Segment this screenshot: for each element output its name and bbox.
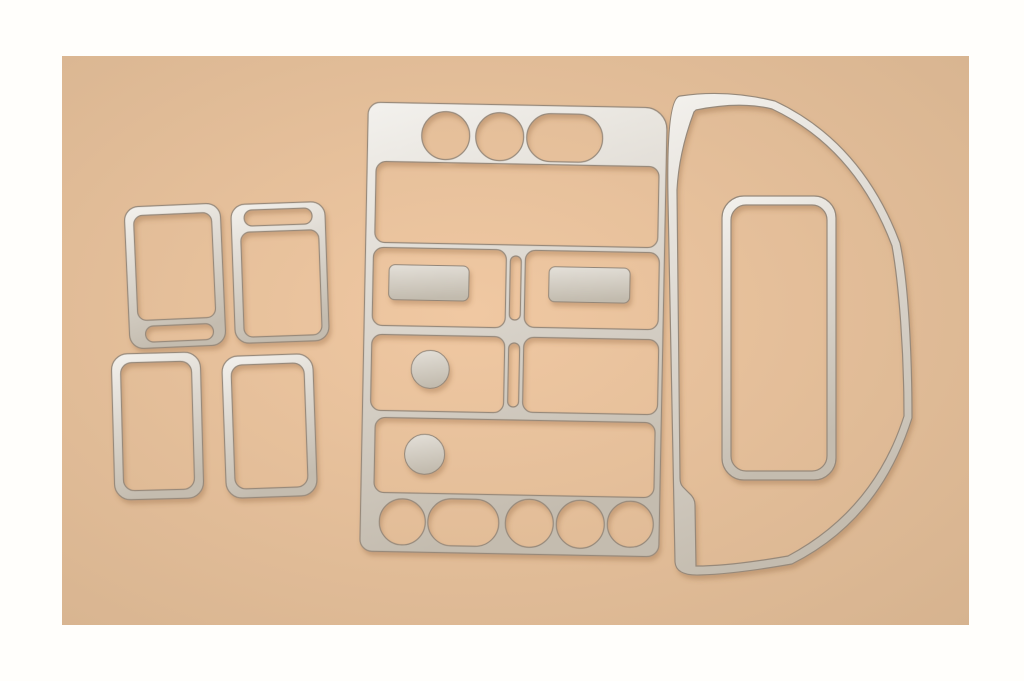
knob-cover-upper xyxy=(411,350,450,389)
knob-cover-lower xyxy=(404,434,445,475)
insert-button-right xyxy=(549,267,631,304)
insert-button-left xyxy=(389,265,470,302)
product-photo-canvas xyxy=(0,0,1024,681)
product-photo xyxy=(0,0,1024,681)
